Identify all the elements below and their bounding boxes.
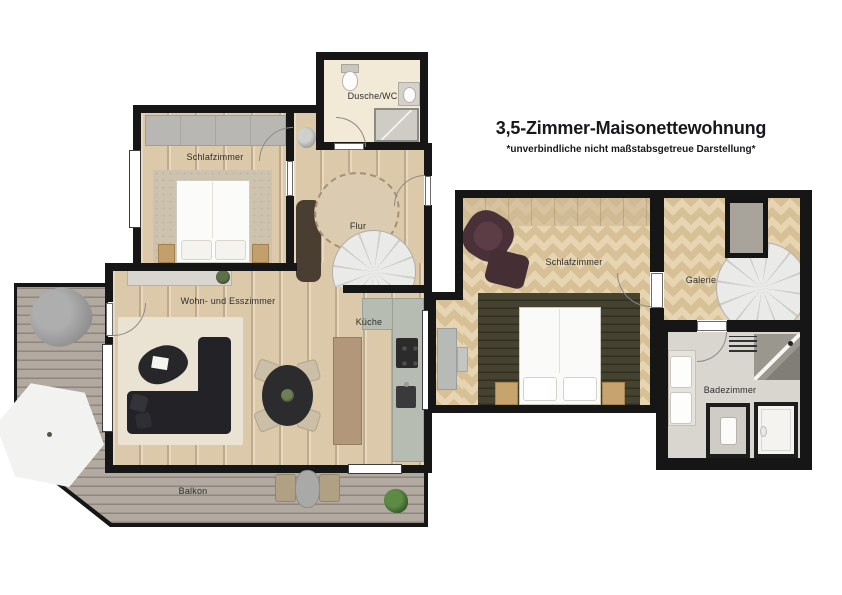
toilet-upper-icon bbox=[720, 417, 737, 445]
shower-drain bbox=[788, 341, 793, 346]
bathtub bbox=[754, 402, 798, 458]
bed-upper-pillow-left bbox=[523, 377, 557, 401]
radiator bbox=[729, 336, 757, 352]
alcove-desk bbox=[437, 328, 457, 390]
room-label-badezimmer: Badezimmer bbox=[694, 384, 766, 396]
wall-bathroom-bottom bbox=[656, 458, 812, 470]
wall-bedroom-upper-left bbox=[455, 190, 463, 300]
bed-upper-fold bbox=[559, 309, 560, 373]
wall-bathroom-left bbox=[656, 320, 668, 470]
wall-alcove-left bbox=[428, 292, 436, 413]
vanity-sink-1 bbox=[670, 356, 692, 388]
wall-top-upper bbox=[455, 190, 812, 198]
bedroom-upper-door-leaf bbox=[651, 273, 663, 308]
bed-upper-pillow-right bbox=[563, 377, 597, 401]
corner-shower bbox=[754, 334, 800, 380]
wall-bedroom-upper-bottom bbox=[428, 405, 666, 413]
nightstand-upper-right bbox=[602, 382, 625, 405]
upper-floor-plan: Schlafzimmer Galerie Badezimmer bbox=[0, 0, 842, 595]
nightstand-upper-left bbox=[495, 382, 518, 405]
toilet-stall bbox=[706, 403, 750, 458]
room-label-galerie: Galerie bbox=[672, 274, 730, 286]
vanity-sink-2 bbox=[670, 392, 692, 424]
wall-galerie-bottom-b bbox=[727, 320, 812, 332]
floorplan-page: 3,5-Zimmer-Maisonettewohnung *unverbindl… bbox=[0, 0, 842, 595]
stairwell-void bbox=[725, 198, 768, 258]
room-label-schlafzimmer-upper: Schlafzimmer bbox=[524, 256, 624, 268]
wall-bedroom-galerie-a bbox=[650, 190, 664, 272]
bathtub-faucet bbox=[760, 426, 767, 437]
alcove-desk-chair bbox=[457, 347, 468, 372]
bathroom-door-leaf bbox=[697, 321, 727, 331]
